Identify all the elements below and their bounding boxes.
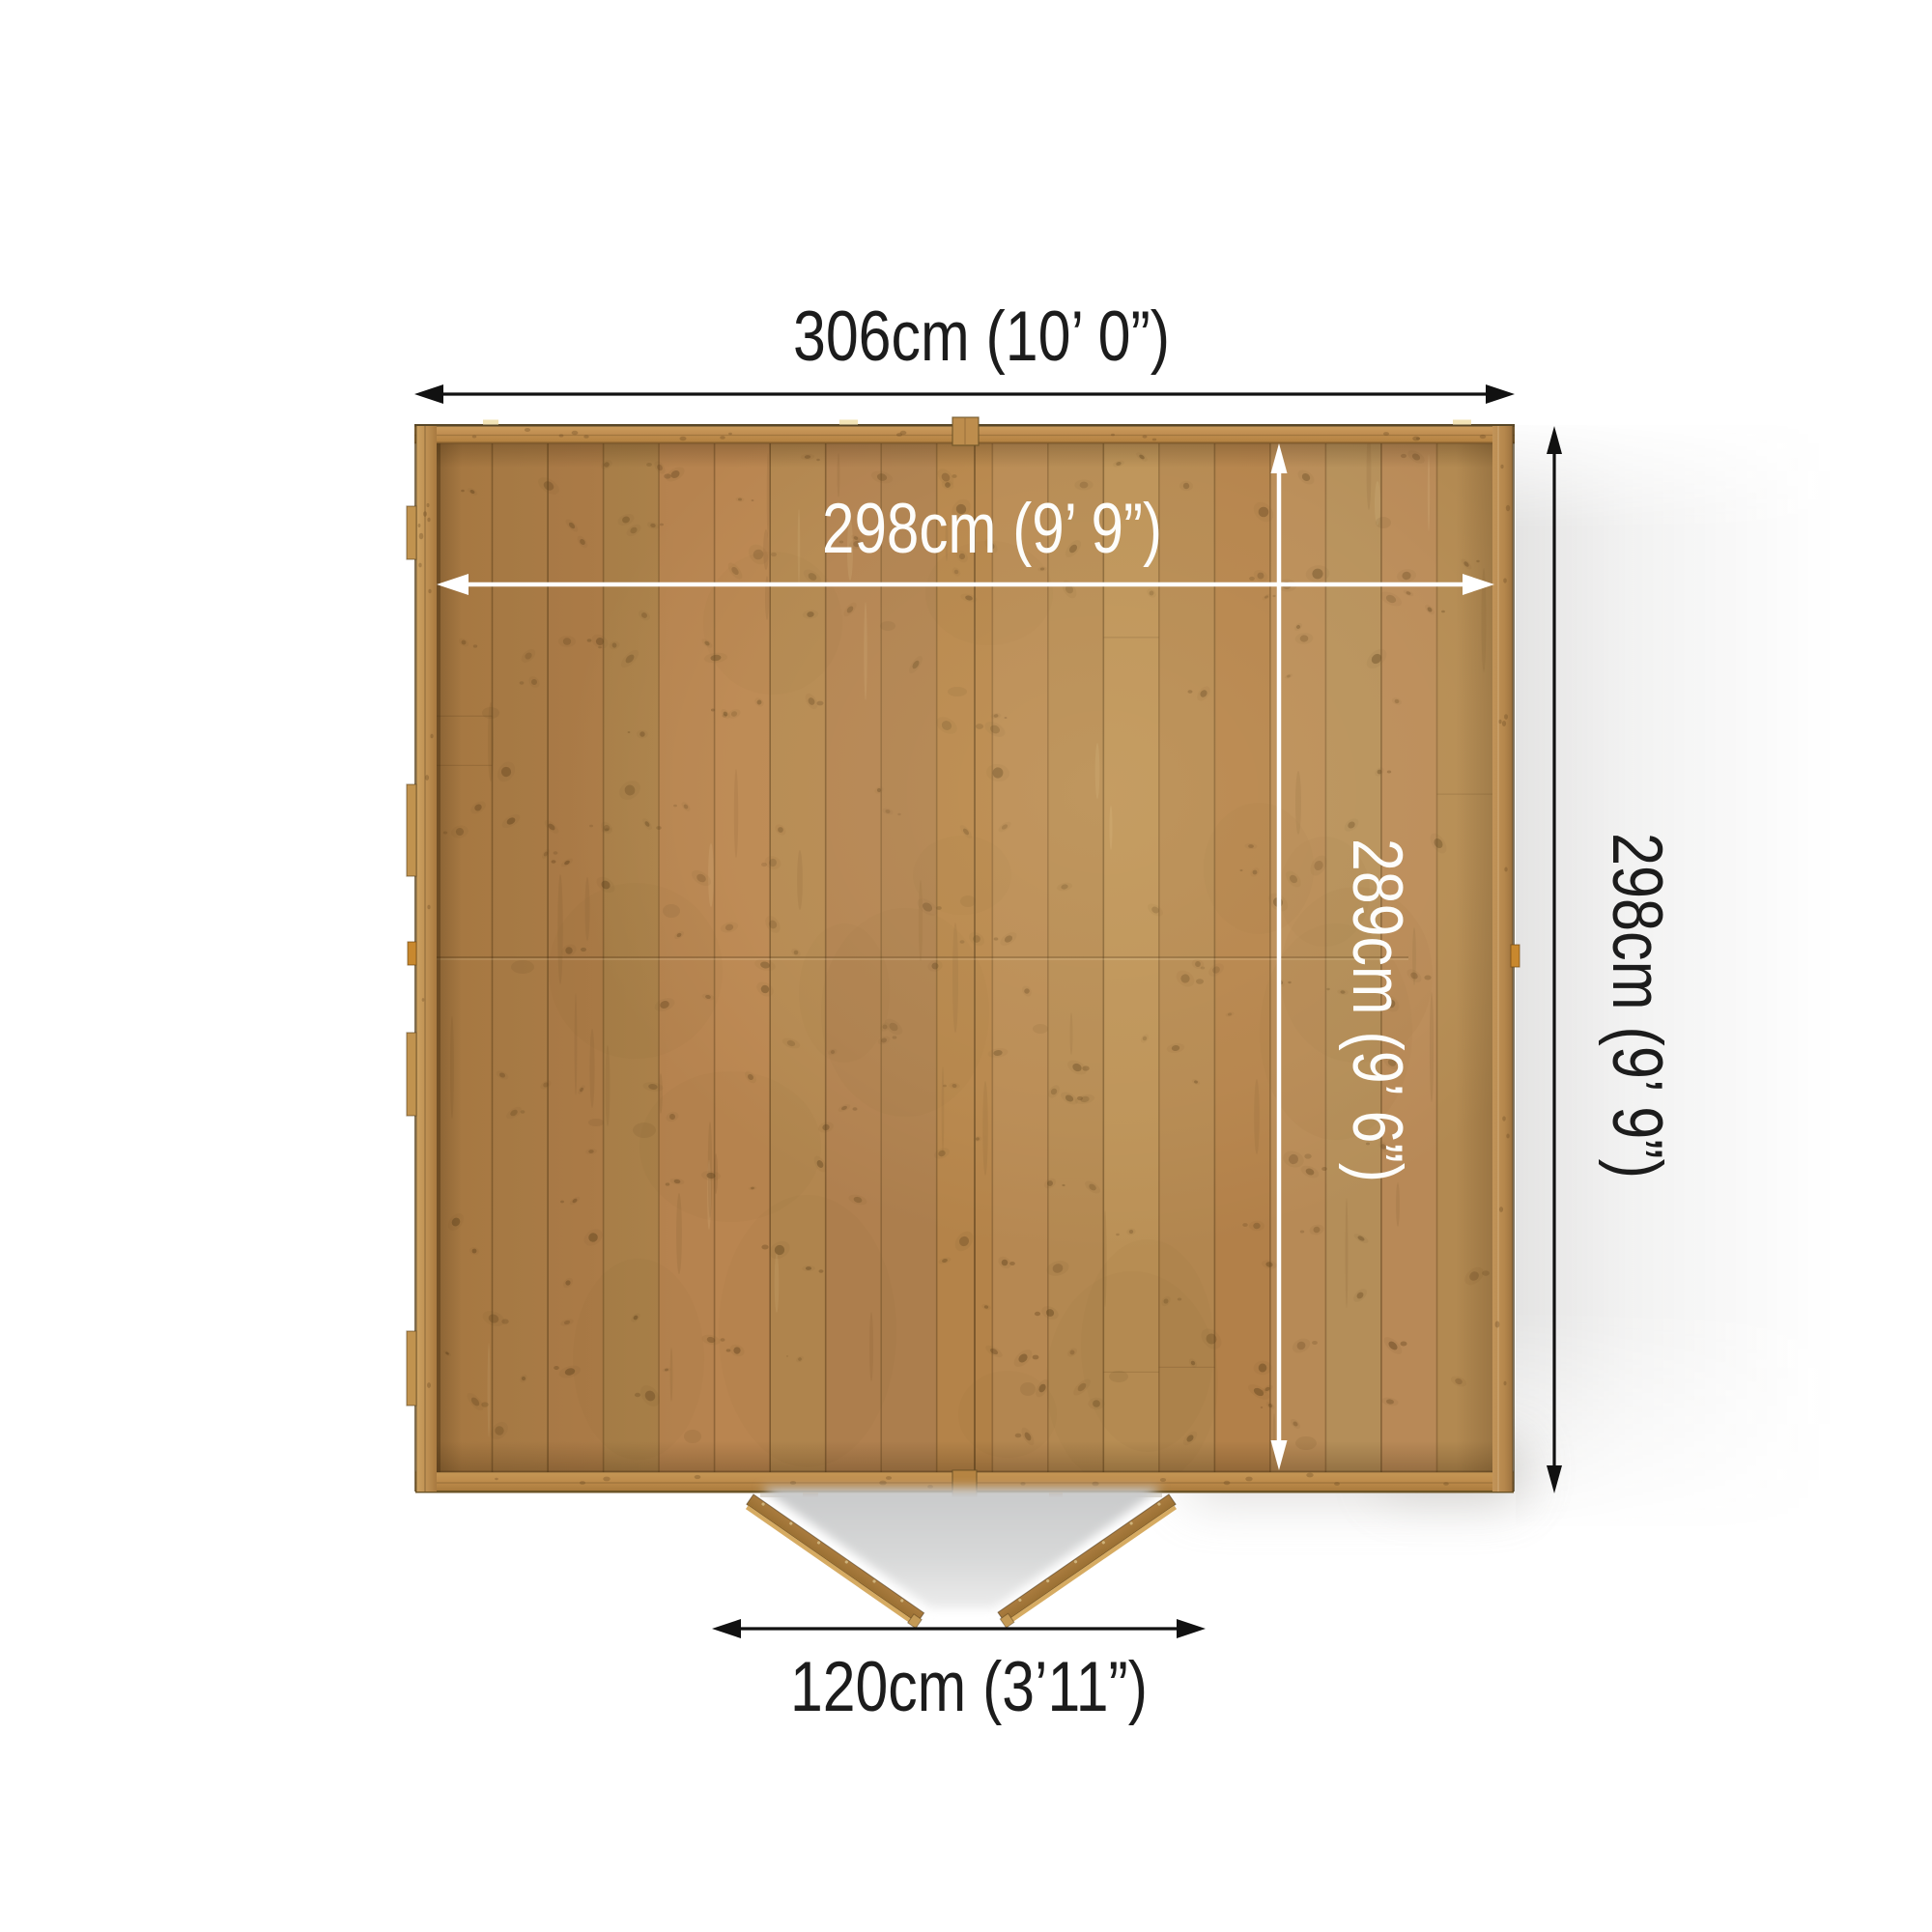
svg-text:289cm (9’ 6”): 289cm (9’ 6”) <box>1338 838 1416 1182</box>
svg-text:120cm (3’11”): 120cm (3’11”) <box>790 1648 1148 1726</box>
svg-text:306cm (10’ 0”): 306cm (10’ 0”) <box>793 298 1170 376</box>
svg-text:298cm (9’ 9”): 298cm (9’ 9”) <box>1598 833 1676 1179</box>
svg-text:298cm (9’ 9”): 298cm (9’ 9”) <box>822 490 1162 568</box>
